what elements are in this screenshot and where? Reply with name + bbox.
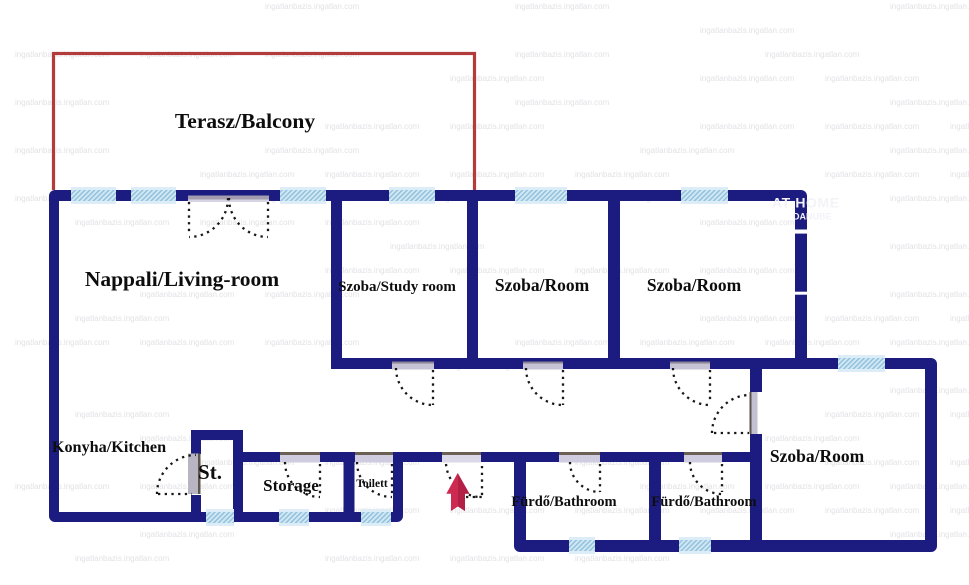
svg-text:ingatlanbazis.ingatlan.com: ingatlanbazis.ingatlan.com: [640, 338, 735, 347]
svg-text:ingatlanbazis.ingatlan.com: ingatlanbazis.ingatlan.com: [325, 170, 420, 179]
svg-text:ingatlanbazis.ingatlan.com: ingatlanbazis.ingatlan.com: [265, 2, 360, 11]
svg-text:ingatlanbazis.ingatlan.com: ingatlanbazis.ingatlan.com: [700, 314, 795, 323]
svg-text:ingatlanbazis.ingatlan.com: ingatlanbazis.ingatlan.com: [15, 338, 110, 347]
svg-text:ingatlanbazis.ingatlan.com: ingatlanbazis.ingatlan.com: [15, 98, 110, 107]
svg-text:ingatlanbazis.ingatlan.com: ingatlanbazis.ingatlan.com: [75, 554, 170, 563]
svg-text:ingatlanbazis.ingatlan.com: ingatlanbazis.ingatlan.com: [950, 122, 969, 131]
svg-text:Nappali/Living-room: Nappali/Living-room: [85, 267, 279, 291]
svg-text:Fürdő/Bathroom: Fürdő/Bathroom: [511, 494, 616, 510]
svg-text:ingatlanbazis.ingatlan.com: ingatlanbazis.ingatlan.com: [200, 218, 295, 227]
svg-text:ingatlanbazis.ingatlan.com: ingatlanbazis.ingatlan.com: [575, 170, 670, 179]
svg-text:ingatlanbazis.ingatlan.com: ingatlanbazis.ingatlan.com: [890, 242, 969, 251]
svg-text:ingatlanbazis.ingatlan.com: ingatlanbazis.ingatlan.com: [700, 266, 795, 275]
svg-text:ingatlanbazis.ingatlan.com: ingatlanbazis.ingatlan.com: [15, 146, 110, 155]
svg-text:ingatlanbazis.ingatlan.com: ingatlanbazis.ingatlan.com: [825, 314, 920, 323]
svg-text:Szoba/Room: Szoba/Room: [770, 446, 865, 466]
svg-text:ingatlanbazis.ingatlan.com: ingatlanbazis.ingatlan.com: [265, 338, 360, 347]
svg-text:ingatlanbazis.ingatlan.com: ingatlanbazis.ingatlan.com: [950, 506, 969, 515]
svg-text:ingatlanbazis.ingatlan.com: ingatlanbazis.ingatlan.com: [450, 266, 545, 275]
svg-text:ingatlanbazis.ingatlan.com: ingatlanbazis.ingatlan.com: [825, 74, 920, 83]
svg-text:ingatlanbazis.ingatlan.com: ingatlanbazis.ingatlan.com: [450, 122, 545, 131]
svg-text:ingatlanbazis.ingatlan.com: ingatlanbazis.ingatlan.com: [765, 434, 860, 443]
svg-text:ingatlanbazis.ingatlan.com: ingatlanbazis.ingatlan.com: [950, 410, 969, 419]
svg-text:ingatlanbazis.ingatlan.com: ingatlanbazis.ingatlan.com: [515, 338, 610, 347]
svg-text:ingatlanbazis.ingatlan.com: ingatlanbazis.ingatlan.com: [450, 74, 545, 83]
svg-text:ingatlanbazis.ingatlan.com: ingatlanbazis.ingatlan.com: [700, 122, 795, 131]
svg-text:DANUBE: DANUBE: [793, 212, 832, 222]
svg-text:ingatlanbazis.ingatlan.com: ingatlanbazis.ingatlan.com: [700, 26, 795, 35]
svg-text:ingatlanbazis.ingatlan.com: ingatlanbazis.ingatlan.com: [950, 170, 969, 179]
svg-text:Szoba/Study room: Szoba/Study room: [338, 279, 456, 295]
svg-text:ingatlanbazis.ingatlan.com: ingatlanbazis.ingatlan.com: [765, 338, 860, 347]
svg-text:ingatlanbazis.ingatlan.com: ingatlanbazis.ingatlan.com: [765, 50, 860, 59]
svg-text:ingatlanbazis.ingatlan.com: ingatlanbazis.ingatlan.com: [140, 530, 235, 539]
svg-text:ingatlanbazis.ingatlan.com: ingatlanbazis.ingatlan.com: [200, 170, 295, 179]
svg-text:ingatlanbazis.ingatlan.com: ingatlanbazis.ingatlan.com: [890, 194, 969, 203]
svg-text:ingatlanbazis.ingatlan.com: ingatlanbazis.ingatlan.com: [890, 290, 969, 299]
svg-text:ingatlanbazis.ingatlan.com: ingatlanbazis.ingatlan.com: [575, 554, 670, 563]
svg-text:AT HOME: AT HOME: [772, 195, 840, 211]
svg-text:ingatlanbazis.ingatlan.com: ingatlanbazis.ingatlan.com: [890, 338, 969, 347]
svg-text:ingatlanbazis.ingatlan.com: ingatlanbazis.ingatlan.com: [765, 482, 860, 491]
svg-text:ingatlanbazis.ingatlan.com: ingatlanbazis.ingatlan.com: [140, 290, 235, 299]
svg-text:Szoba/Room: Szoba/Room: [647, 275, 742, 295]
svg-text:Toilett: Toilett: [356, 478, 388, 490]
svg-text:ingatlanbazis.ingatlan.com: ingatlanbazis.ingatlan.com: [450, 170, 545, 179]
svg-text:ingatlanbazis.ingatlan.com: ingatlanbazis.ingatlan.com: [450, 554, 545, 563]
svg-text:Storage: Storage: [263, 476, 319, 495]
svg-text:ingatlanbazis.ingatlan.com: ingatlanbazis.ingatlan.com: [890, 2, 969, 11]
svg-text:ingatlanbazis.ingatlan.com: ingatlanbazis.ingatlan.com: [325, 554, 420, 563]
svg-text:Szoba/Room: Szoba/Room: [495, 275, 590, 295]
svg-text:ingatlanbazis.ingatlan.com: ingatlanbazis.ingatlan.com: [265, 146, 360, 155]
svg-text:Konyha/Kitchen: Konyha/Kitchen: [52, 438, 166, 456]
svg-text:ingatlanbazis.ingatlan.com: ingatlanbazis.ingatlan.com: [825, 170, 920, 179]
svg-text:ingatlanbazis.ingatlan.com: ingatlanbazis.ingatlan.com: [515, 98, 610, 107]
svg-text:ingatlanbazis.ingatlan.com: ingatlanbazis.ingatlan.com: [515, 2, 610, 11]
svg-text:ingatlanbazis.ingatlan.com: ingatlanbazis.ingatlan.com: [700, 218, 795, 227]
svg-text:ingatlanbazis.ingatlan.com: ingatlanbazis.ingatlan.com: [950, 314, 969, 323]
svg-text:St.: St.: [198, 460, 222, 484]
svg-text:ingatlanbazis.ingatlan.com: ingatlanbazis.ingatlan.com: [515, 50, 610, 59]
svg-text:ingatlanbazis.ingatlan.com: ingatlanbazis.ingatlan.com: [825, 506, 920, 515]
svg-text:ingatlanbazis.ingatlan.com: ingatlanbazis.ingatlan.com: [325, 122, 420, 131]
svg-text:Fürdő/Bathroom: Fürdő/Bathroom: [651, 494, 756, 510]
svg-text:ingatlanbazis.ingatlan.com: ingatlanbazis.ingatlan.com: [950, 458, 969, 467]
svg-text:ingatlanbazis.ingatlan.com: ingatlanbazis.ingatlan.com: [575, 266, 670, 275]
svg-text:ingatlanbazis.ingatlan.com: ingatlanbazis.ingatlan.com: [75, 218, 170, 227]
svg-text:ingatlanbazis.ingatlan.com: ingatlanbazis.ingatlan.com: [890, 146, 969, 155]
svg-text:Terasz/Balcony: Terasz/Balcony: [175, 109, 315, 133]
svg-text:ingatlanbazis.ingatlan.com: ingatlanbazis.ingatlan.com: [15, 482, 110, 491]
svg-text:ingatlanbazis.ingatlan.com: ingatlanbazis.ingatlan.com: [825, 122, 920, 131]
svg-text:ingatlanbazis.ingatlan.com: ingatlanbazis.ingatlan.com: [890, 98, 969, 107]
svg-text:ingatlanbazis.ingatlan.com: ingatlanbazis.ingatlan.com: [640, 146, 735, 155]
svg-text:ingatlanbazis.ingatlan.com: ingatlanbazis.ingatlan.com: [825, 410, 920, 419]
svg-text:ingatlanbazis.ingatlan.com: ingatlanbazis.ingatlan.com: [75, 410, 170, 419]
svg-text:ingatlanbazis.ingatlan.com: ingatlanbazis.ingatlan.com: [140, 338, 235, 347]
svg-text:ingatlanbazis.ingatlan.com: ingatlanbazis.ingatlan.com: [75, 314, 170, 323]
svg-text:ingatlanbazis.ingatlan.com: ingatlanbazis.ingatlan.com: [700, 74, 795, 83]
